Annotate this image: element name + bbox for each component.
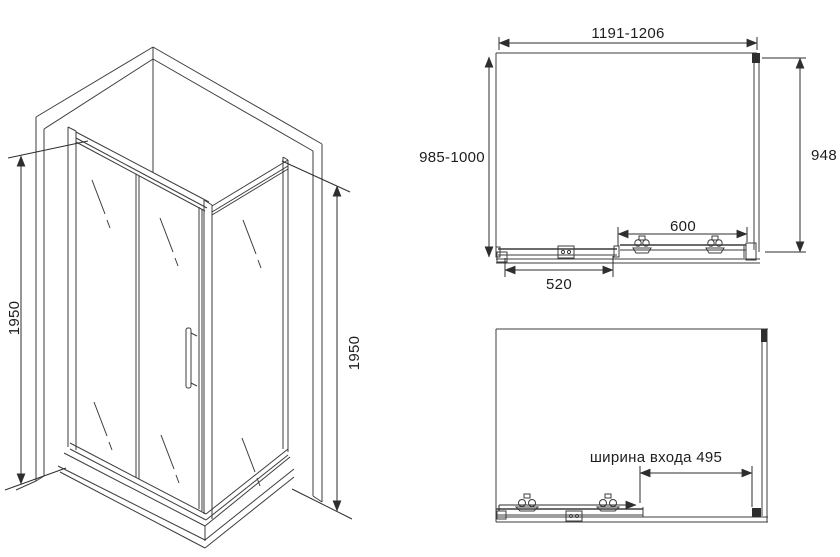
top-view-outline — [496, 53, 760, 263]
technical-drawing-page: 1950 1950 — [0, 0, 840, 557]
door-handle — [186, 328, 197, 388]
dimension-fixed-panel: 520 — [505, 256, 613, 293]
open-view-outline — [496, 329, 768, 522]
dimension-depth: 985-1000 — [419, 57, 489, 257]
sliding-door-rail — [620, 236, 756, 260]
width-range-label: 1191-1206 — [591, 25, 664, 42]
side-panel-label: 948 — [811, 147, 837, 164]
dimension-entrance: ширина входа 495 — [590, 449, 752, 507]
entrance-width-label: ширина входа 495 — [590, 449, 722, 466]
room-walls — [16, 47, 322, 502]
height-right-label: 1950 — [346, 336, 363, 371]
depth-range-label: 985-1000 — [419, 149, 485, 166]
technical-drawing-canvas: 1950 1950 — [0, 0, 840, 557]
fixed-panel-label: 520 — [546, 276, 572, 293]
iso-view: 1950 1950 — [5, 47, 363, 548]
dimension-door-width: 600 — [618, 218, 747, 246]
enclosure-frame — [58, 127, 294, 548]
glass-sparkles — [92, 180, 261, 486]
fixed-panel-rail — [496, 246, 619, 258]
top-view-closed: 1191-1206 985-1000 948 600 520 — [419, 25, 837, 293]
dimension-side-panel: 948 — [762, 58, 837, 252]
dimension-width: 1191-1206 — [499, 25, 757, 50]
height-left-label: 1950 — [6, 301, 23, 336]
door-width-label: 600 — [670, 218, 696, 235]
top-view-open: ширина входа 495 — [496, 329, 768, 522]
